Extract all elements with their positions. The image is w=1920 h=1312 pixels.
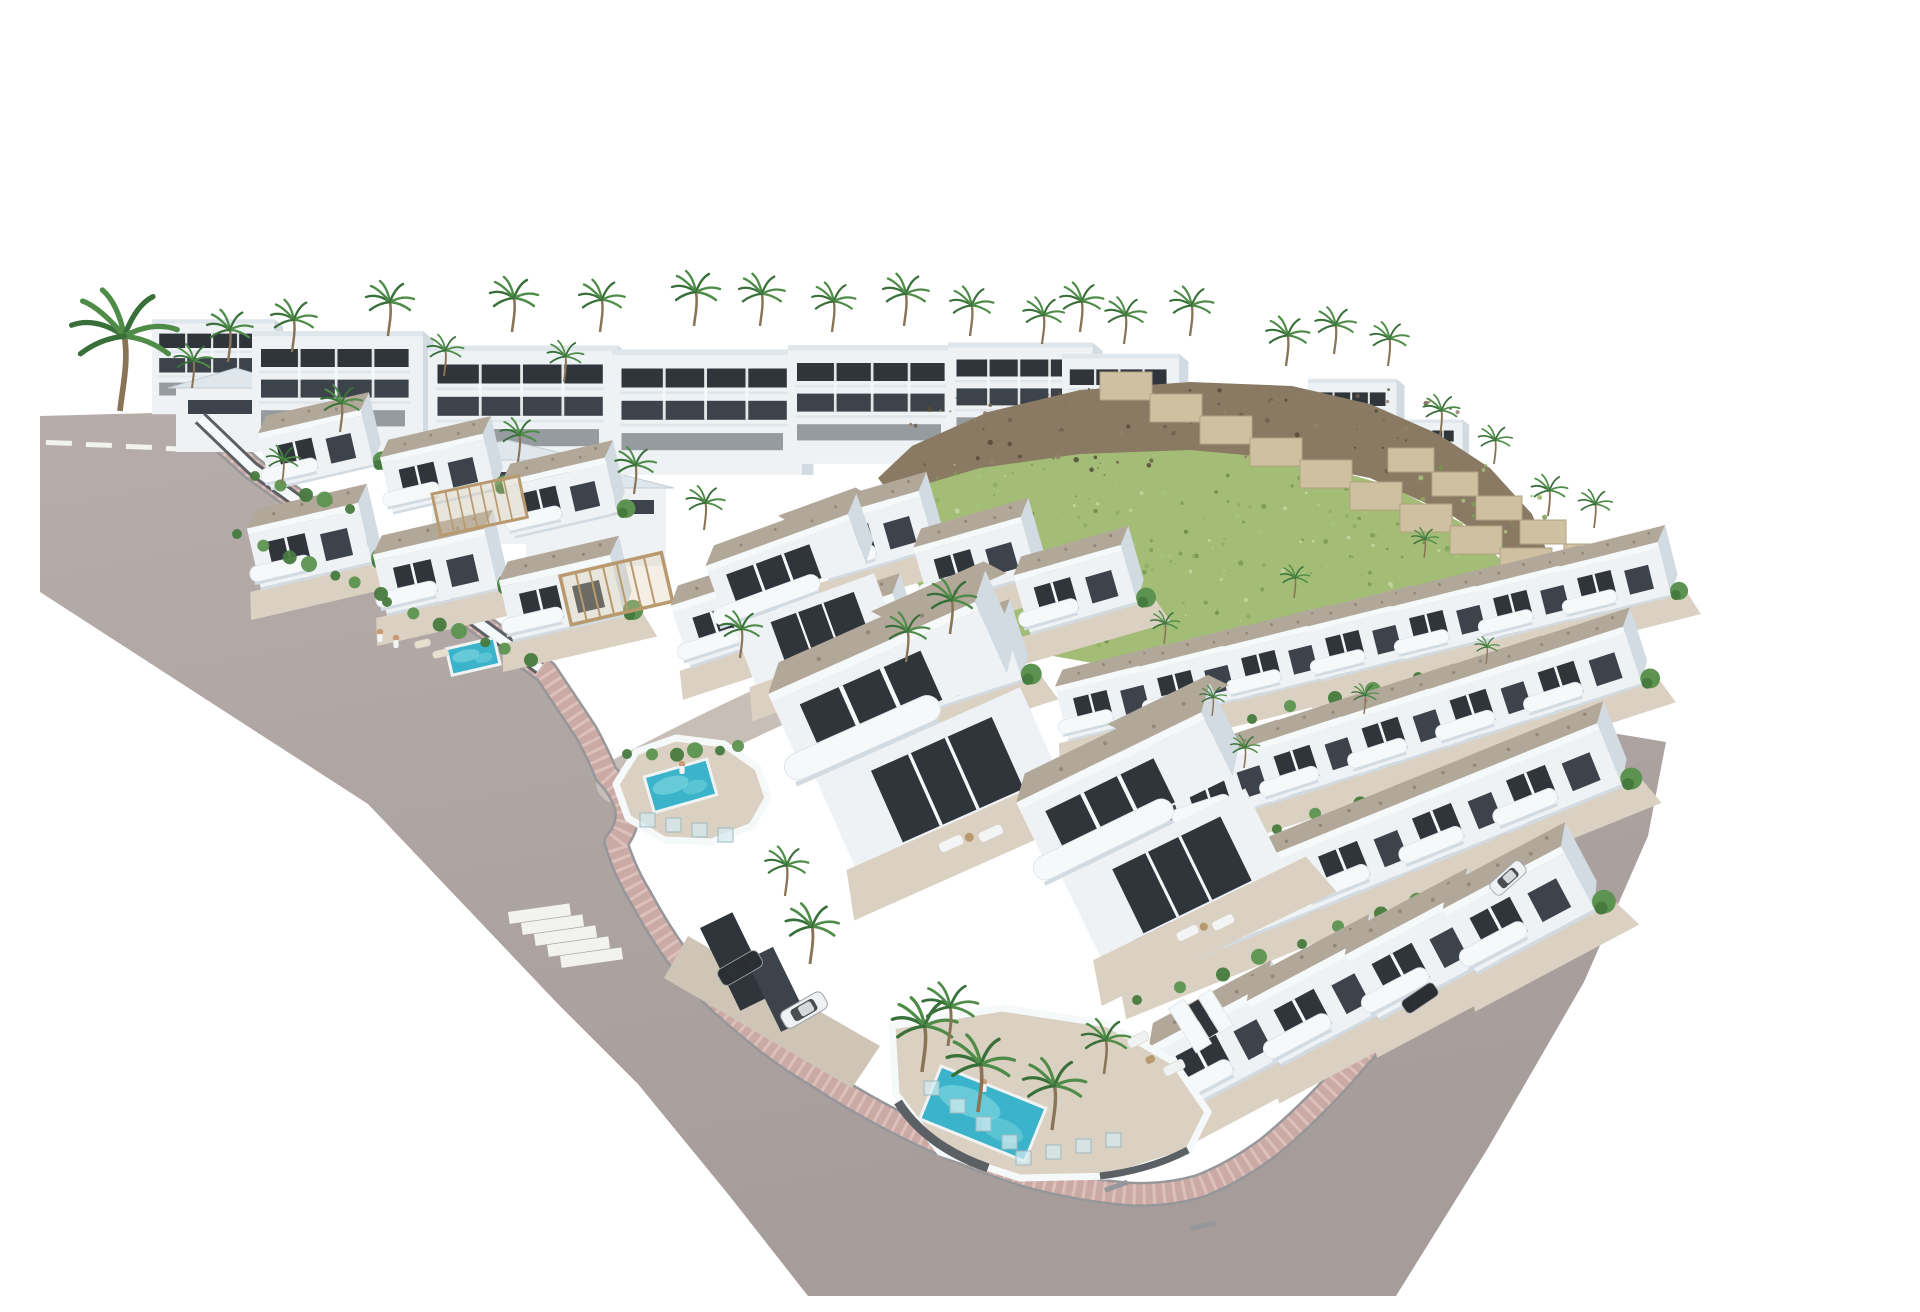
aerial-development-render — [40, 16, 1920, 1296]
render-canvas — [40, 16, 1920, 1296]
apartment-block — [612, 350, 813, 475]
person — [377, 629, 383, 642]
person — [679, 761, 685, 774]
person — [393, 635, 399, 648]
